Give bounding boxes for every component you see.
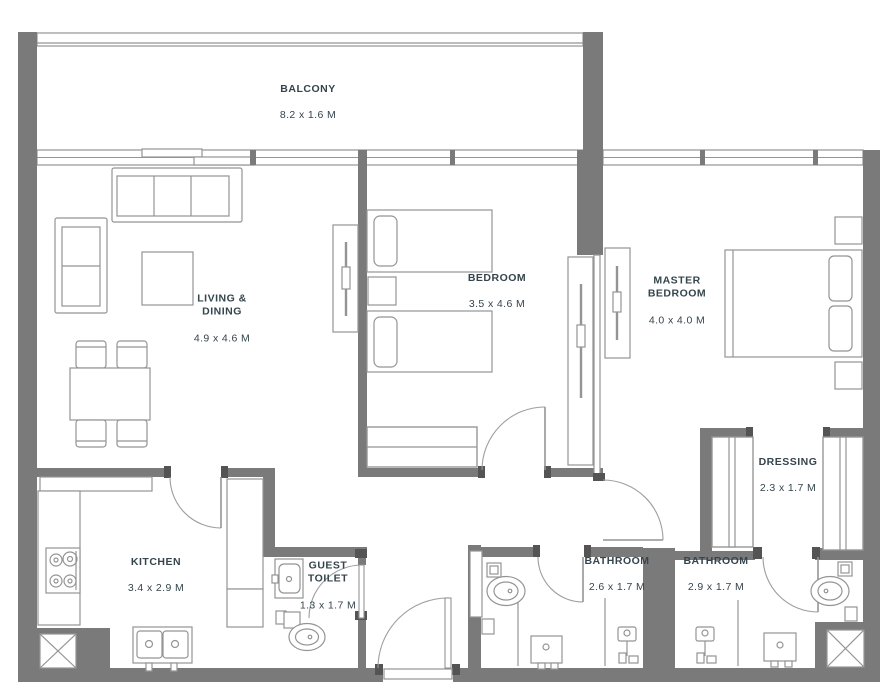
dining-table	[70, 341, 150, 447]
toilet-icon	[487, 563, 525, 606]
room-dims: 8.2 x 1.6 M	[280, 110, 336, 123]
room-label-bathroom-b: BATHROOM 2.9 x 1.7 M	[683, 542, 748, 608]
room-name: MASTER BEDROOM	[648, 275, 706, 301]
bedroom-door	[482, 407, 545, 470]
room-dims: 1.3 x 1.7 M	[300, 599, 356, 612]
double-bed	[725, 250, 862, 357]
kitchen-tall-unit	[227, 479, 263, 589]
room-name: GUEST TOILET	[300, 560, 356, 586]
room-name: BATHROOM	[683, 555, 748, 568]
sink-double-icon	[133, 627, 192, 671]
room-name: BATHROOM	[584, 555, 649, 568]
sink-icon	[764, 633, 796, 667]
entrance-door	[378, 598, 451, 668]
room-label-living: LIVING & DINING 4.9 x 4.6 M	[194, 280, 250, 359]
tv-panel-living	[333, 225, 358, 332]
paper-holder	[482, 619, 494, 634]
wardrobe-open	[367, 427, 477, 467]
shaft-x-icon	[40, 634, 76, 668]
shower-icon	[618, 627, 638, 663]
balcony-railing	[37, 33, 583, 46]
nightstand	[835, 217, 862, 244]
nightstand	[835, 362, 862, 389]
room-label-kitchen: KITCHEN 3.4 x 2.9 M	[128, 543, 184, 609]
room-label-master: MASTER BEDROOM 4.0 x 4.0 M	[648, 262, 706, 341]
master-furniture	[605, 217, 862, 389]
room-dims: 2.6 x 1.7 M	[584, 582, 649, 595]
stove-icon	[46, 548, 80, 593]
paper-holder	[845, 607, 857, 621]
nightstand	[368, 277, 396, 305]
duct	[470, 551, 482, 617]
partition-wall	[594, 255, 600, 480]
room-dims: 3.4 x 2.9 M	[128, 583, 184, 596]
bathroom-b-door	[763, 557, 818, 612]
fridge	[227, 589, 263, 627]
room-dims: 2.9 x 1.7 M	[683, 582, 748, 595]
entrance-threshold	[384, 669, 452, 679]
wardrobe-shelves-right	[823, 437, 863, 550]
room-dims: 4.0 x 4.0 M	[648, 314, 706, 327]
master-bedroom-door	[603, 480, 663, 540]
wardrobe-shelves-left	[712, 437, 753, 547]
sink-icon	[272, 559, 303, 598]
floor-plan: BALCONY 8.2 x 1.6 M LIVING & DINING 4.9 …	[0, 0, 893, 696]
toilet-icon	[811, 562, 852, 606]
room-name: BEDROOM	[468, 272, 526, 285]
tv-panel-bedroom	[568, 257, 593, 465]
sink-icon	[531, 636, 562, 669]
room-label-dressing: DRESSING 2.3 x 1.7 M	[759, 443, 818, 509]
bathroom-a-door	[538, 557, 583, 602]
room-dims: 2.3 x 1.7 M	[759, 483, 818, 496]
bedroom-furniture	[367, 210, 593, 467]
shaft-x-icon	[827, 630, 864, 667]
room-label-guest-toilet: GUEST TOILET 1.3 x 1.7 M	[300, 547, 356, 626]
kitchen-counter-top	[40, 477, 152, 491]
kitchen-door	[170, 477, 221, 528]
sofa	[112, 168, 242, 222]
room-label-bedroom: BEDROOM 3.5 x 4.6 M	[468, 259, 526, 325]
room-name: LIVING & DINING	[194, 293, 250, 319]
room-dims: 3.5 x 4.6 M	[468, 299, 526, 312]
room-label-bathroom-a: BATHROOM 2.6 x 1.7 M	[584, 542, 649, 608]
room-name: BALCONY	[280, 83, 336, 96]
armchair	[55, 218, 107, 313]
coffee-table	[142, 252, 193, 305]
room-name: DRESSING	[759, 456, 818, 469]
room-label-balcony: BALCONY 8.2 x 1.6 M	[280, 70, 336, 136]
shower-icon	[696, 627, 716, 663]
room-name: KITCHEN	[128, 556, 184, 569]
room-dims: 4.9 x 4.6 M	[194, 332, 250, 345]
tv-panel-master	[605, 248, 630, 358]
